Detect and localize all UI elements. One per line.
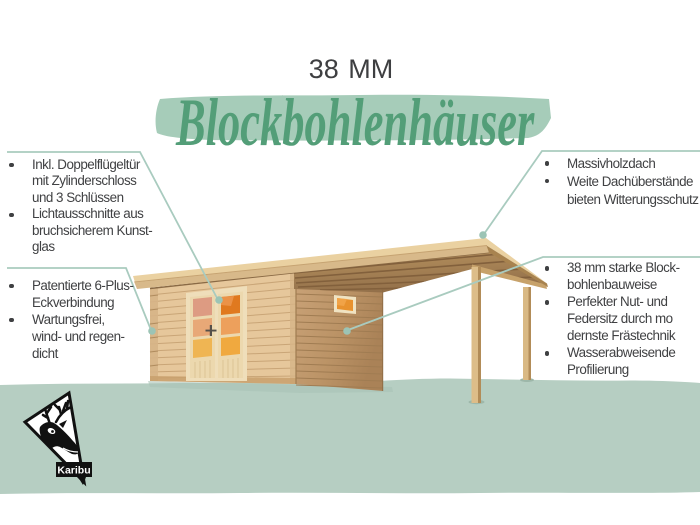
svg-text:Karibu: Karibu — [57, 465, 90, 477]
